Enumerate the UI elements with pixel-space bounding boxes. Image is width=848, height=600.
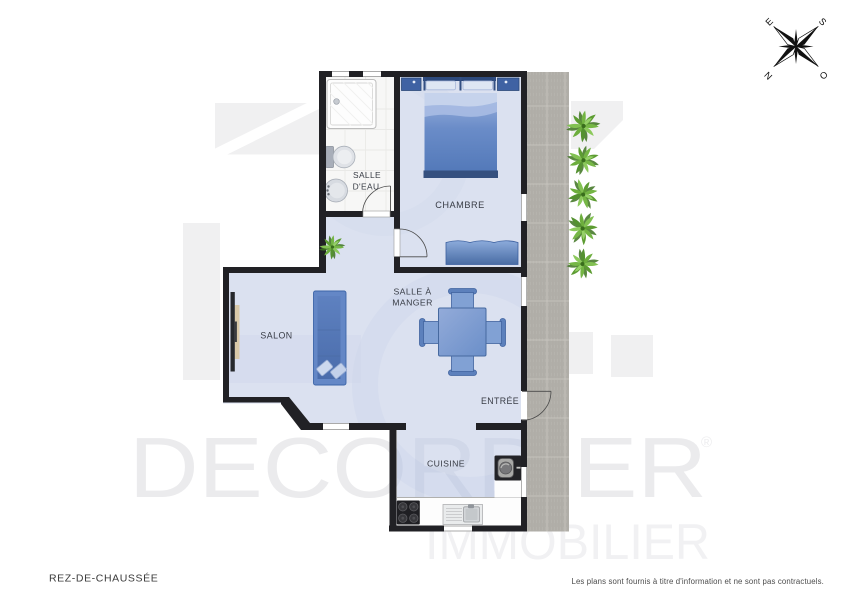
svg-text:®: ® (701, 434, 712, 451)
svg-text:SALON: SALON (260, 331, 292, 341)
svg-text:ENTRÉE: ENTRÉE (481, 396, 519, 406)
svg-text:MANGER: MANGER (392, 298, 433, 308)
svg-text:SALLE À: SALLE À (393, 287, 431, 297)
svg-text:SALLE: SALLE (353, 170, 381, 180)
svg-text:Les plans sont fournis à titre: Les plans sont fournis à titre d'informa… (571, 577, 824, 586)
svg-text:CUISINE: CUISINE (427, 459, 465, 469)
svg-text:CHAMBRE: CHAMBRE (435, 200, 484, 210)
svg-text:REZ-DE-CHAUSSÉE: REZ-DE-CHAUSSÉE (49, 572, 158, 585)
svg-text:D'EAU: D'EAU (353, 182, 380, 192)
